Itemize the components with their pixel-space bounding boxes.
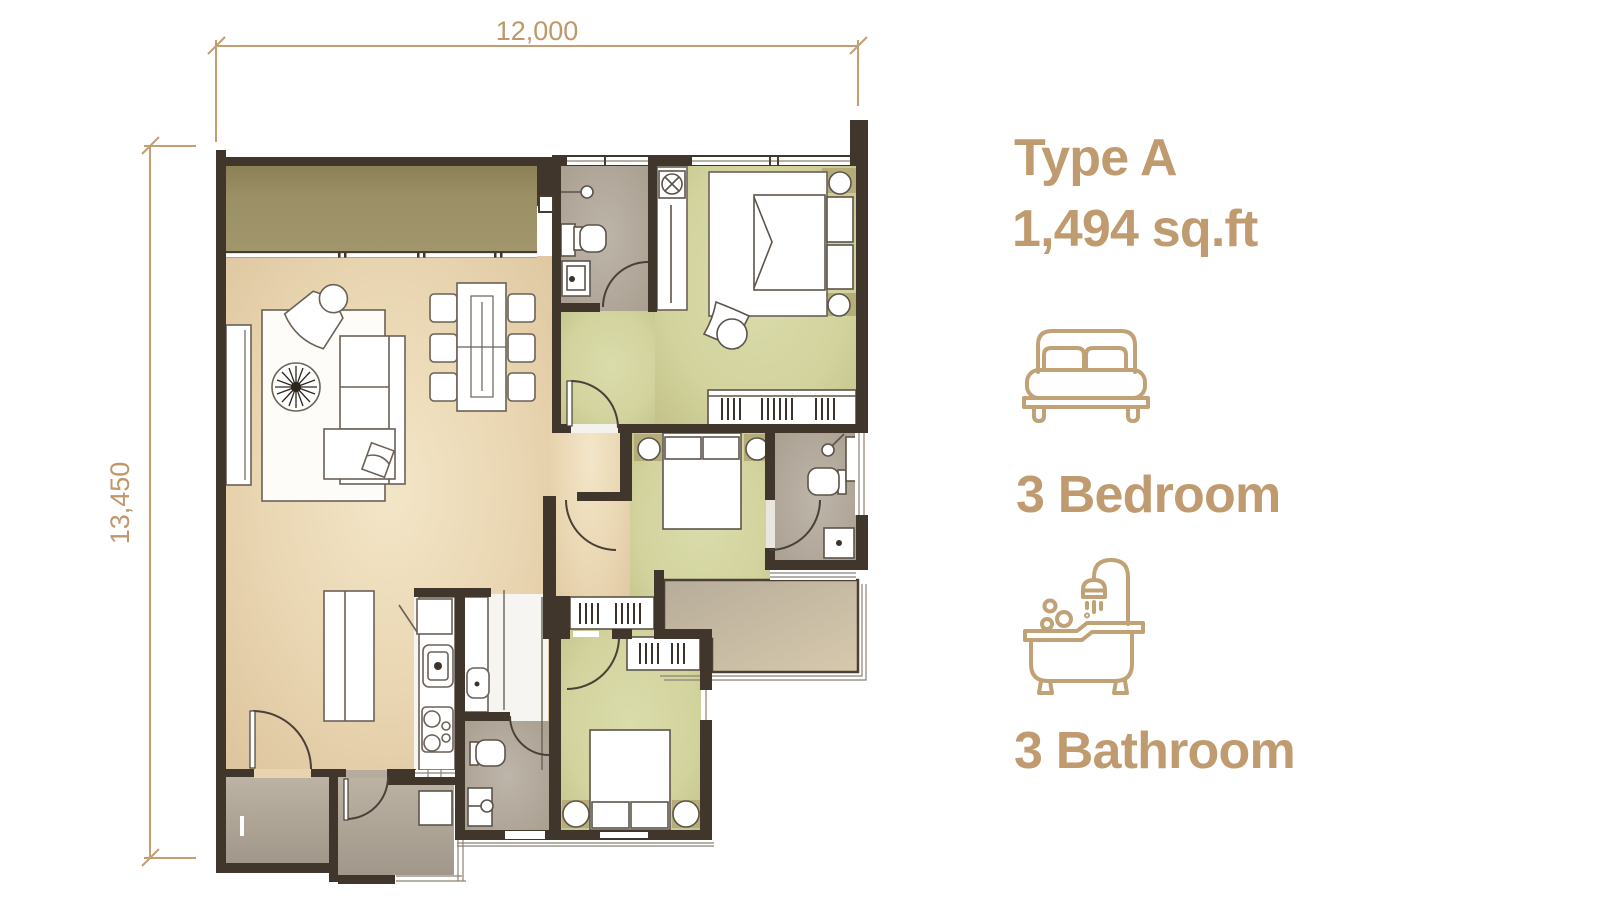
svg-text:3 Bedroom: 3 Bedroom — [1016, 466, 1280, 524]
svg-text:Type A: Type A — [1014, 129, 1177, 187]
svg-text:12,000: 12,000 — [496, 16, 579, 46]
svg-text:1,494 sq.ft: 1,494 sq.ft — [1012, 200, 1258, 258]
svg-text:3 Bathroom: 3 Bathroom — [1014, 722, 1295, 780]
svg-text:13,450: 13,450 — [105, 462, 135, 545]
